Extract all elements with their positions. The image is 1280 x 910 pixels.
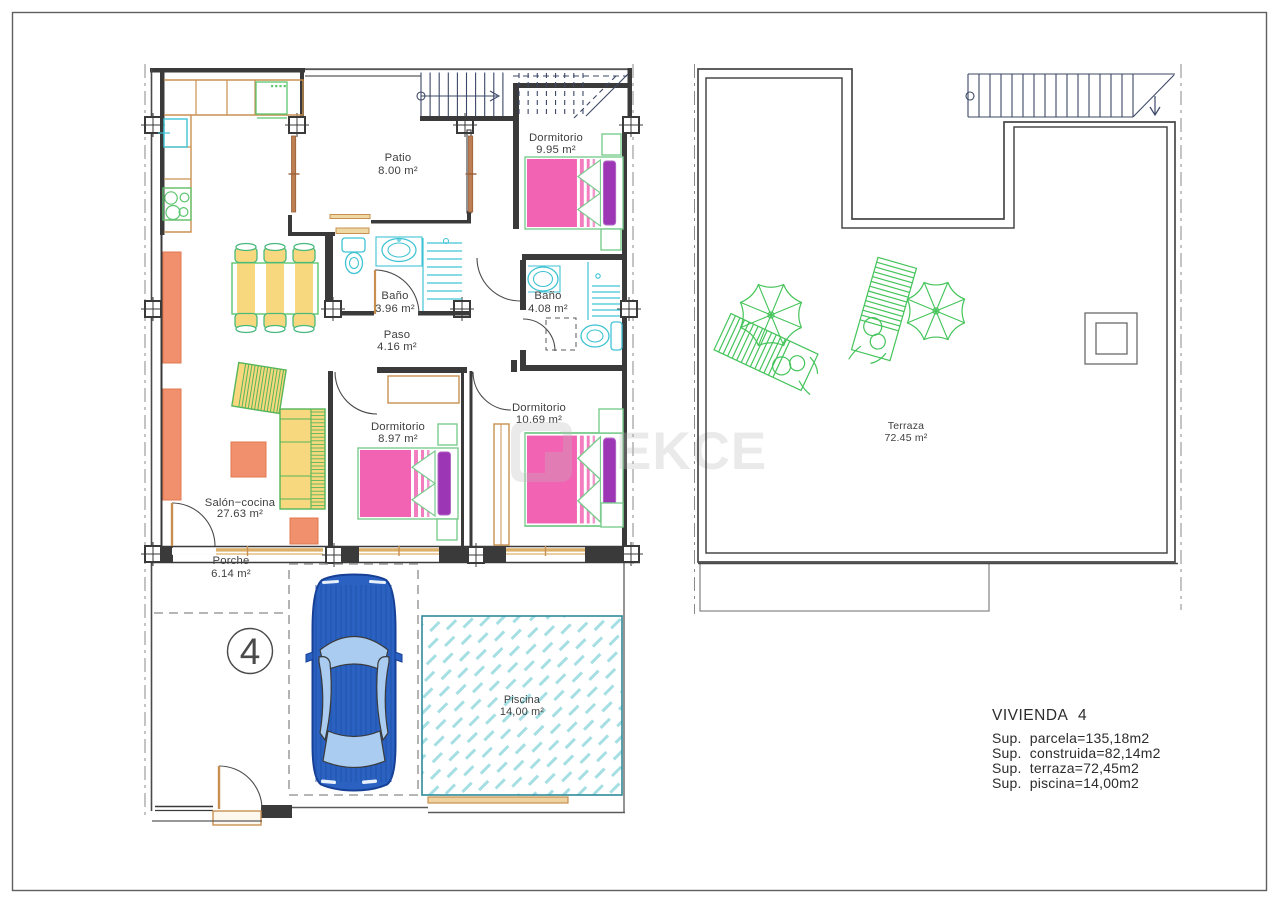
svg-text:Paso: Paso — [384, 329, 411, 341]
svg-text:Baño: Baño — [534, 290, 561, 302]
svg-text:14,00 m²: 14,00 m² — [500, 706, 544, 718]
svg-text:9.95 m²: 9.95 m² — [536, 144, 576, 156]
svg-text:8.97 m²: 8.97 m² — [378, 433, 418, 445]
svg-text:Sup. construida=82,14m2: Sup. construida=82,14m2 — [992, 745, 1161, 761]
svg-text:VIVIENDA 4: VIVIENDA 4 — [992, 707, 1087, 724]
svg-text:8.00 m²: 8.00 m² — [378, 165, 418, 177]
svg-text:Terraza: Terraza — [888, 420, 924, 432]
svg-text:Piscina: Piscina — [504, 694, 540, 706]
svg-text:27.63 m²: 27.63 m² — [217, 508, 263, 520]
svg-text:3.96 m²: 3.96 m² — [375, 303, 415, 315]
svg-text:Sup. parcela=135,18m2: Sup. parcela=135,18m2 — [992, 730, 1149, 746]
svg-text:4.16 m²: 4.16 m² — [377, 341, 417, 353]
svg-text:EKCE: EKCE — [616, 422, 767, 481]
svg-text:Patio: Patio — [385, 152, 412, 164]
svg-text:Dormitorio: Dormitorio — [512, 402, 566, 414]
svg-text:Sup. terraza=72,45m2: Sup. terraza=72,45m2 — [992, 760, 1139, 776]
svg-text:6.14 m²: 6.14 m² — [211, 568, 251, 580]
svg-text:4: 4 — [240, 631, 261, 672]
svg-text:72.45 m²: 72.45 m² — [884, 432, 927, 444]
svg-text:Porche: Porche — [213, 555, 250, 567]
svg-text:Sup. piscina=14,00m2: Sup. piscina=14,00m2 — [992, 775, 1139, 791]
svg-text:Dormitorio: Dormitorio — [529, 132, 583, 144]
svg-text:Dormitorio: Dormitorio — [371, 421, 425, 433]
svg-text:Baño: Baño — [381, 290, 408, 302]
svg-text:4.08 m²: 4.08 m² — [528, 303, 568, 315]
